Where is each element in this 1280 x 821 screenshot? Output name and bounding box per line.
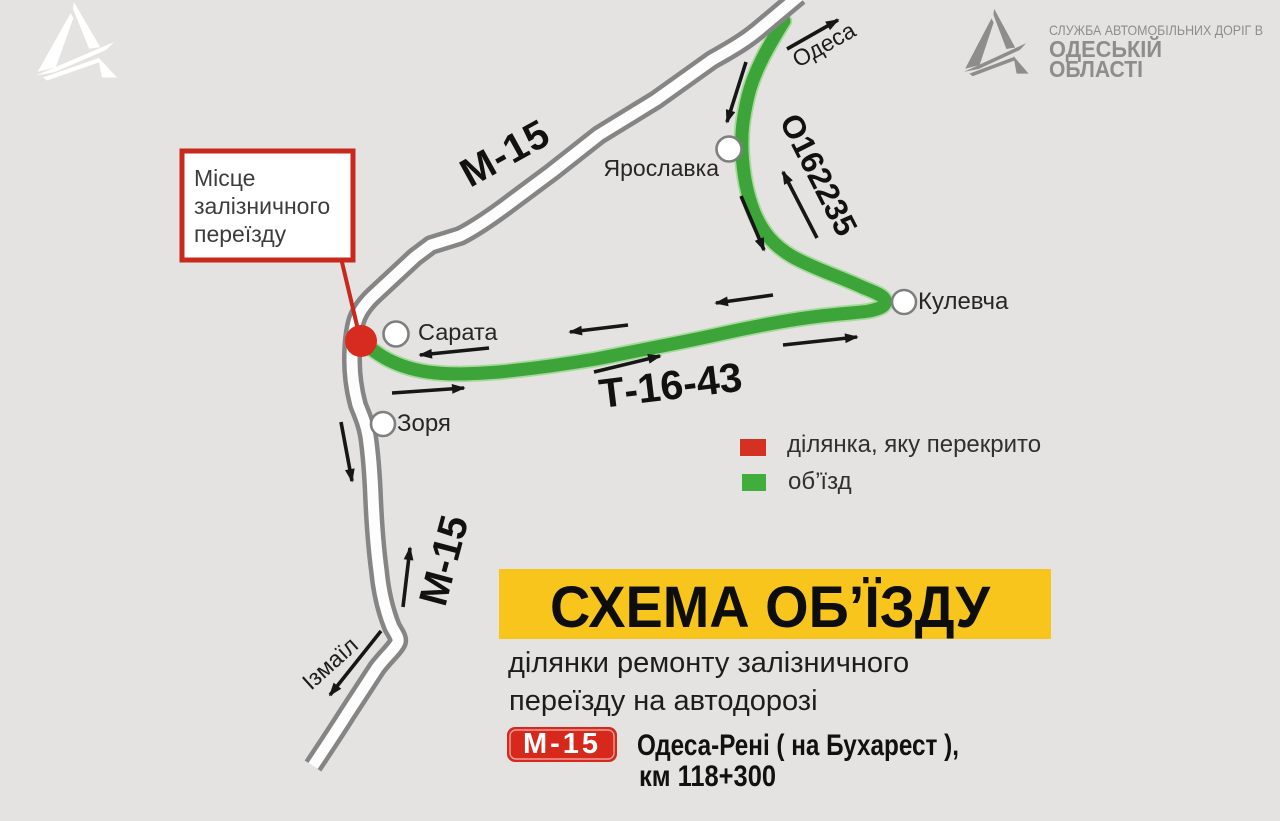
svg-text:об’їзд: об’їзд bbox=[788, 468, 852, 495]
svg-text:Зоря: Зоря bbox=[397, 410, 451, 437]
svg-text:км 118+300: км 118+300 bbox=[639, 760, 776, 793]
svg-text:Ярославка: Ярославка bbox=[604, 155, 720, 181]
svg-text:М-15: М-15 bbox=[523, 728, 601, 760]
svg-text:переїзду на автодорозі: переїзду на автодорозі bbox=[509, 685, 818, 717]
svg-text:залізничного: залізничного bbox=[194, 193, 330, 219]
svg-text:ОБЛАСТІ: ОБЛАСТІ bbox=[1049, 56, 1143, 82]
svg-text:СХЕМА ОБ’ЇЗДУ: СХЕМА ОБ’ЇЗДУ bbox=[550, 575, 991, 640]
svg-text:Одеса-Рені ( на Бухарест ),: Одеса-Рені ( на Бухарест ), bbox=[637, 729, 959, 762]
svg-text:Сарата: Сарата bbox=[418, 319, 498, 345]
svg-text:переїзду: переїзду bbox=[194, 221, 287, 247]
svg-text:ділянки ремонту залізничного: ділянки ремонту залізничного bbox=[508, 647, 909, 679]
svg-text:ділянка, яку перекрито: ділянка, яку перекрито bbox=[787, 431, 1041, 458]
svg-text:Місце: Місце bbox=[194, 165, 255, 191]
svg-text:Кулевча: Кулевча bbox=[918, 288, 1009, 315]
